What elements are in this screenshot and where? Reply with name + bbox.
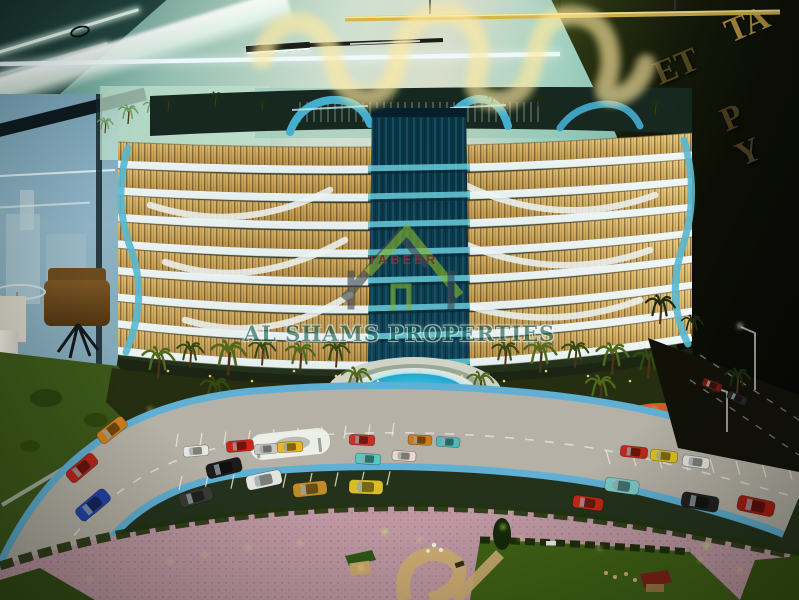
model-car	[277, 441, 303, 453]
model-car	[349, 479, 383, 494]
neon-light-sculpture	[0, 0, 799, 180]
garden-bench	[546, 541, 556, 546]
model-car	[355, 453, 381, 465]
hanging-rod	[258, 40, 443, 47]
model-car	[436, 436, 460, 447]
model-car	[620, 445, 648, 459]
model-car	[254, 443, 278, 454]
model-car	[572, 495, 604, 512]
model-car	[408, 434, 432, 445]
model-car	[226, 439, 254, 453]
model-car	[392, 450, 416, 461]
model-car	[292, 480, 327, 497]
garden-tree	[493, 518, 511, 550]
showroom-scene: ET TA P Y	[0, 0, 799, 600]
model-car	[349, 434, 375, 446]
model-car	[183, 445, 209, 458]
